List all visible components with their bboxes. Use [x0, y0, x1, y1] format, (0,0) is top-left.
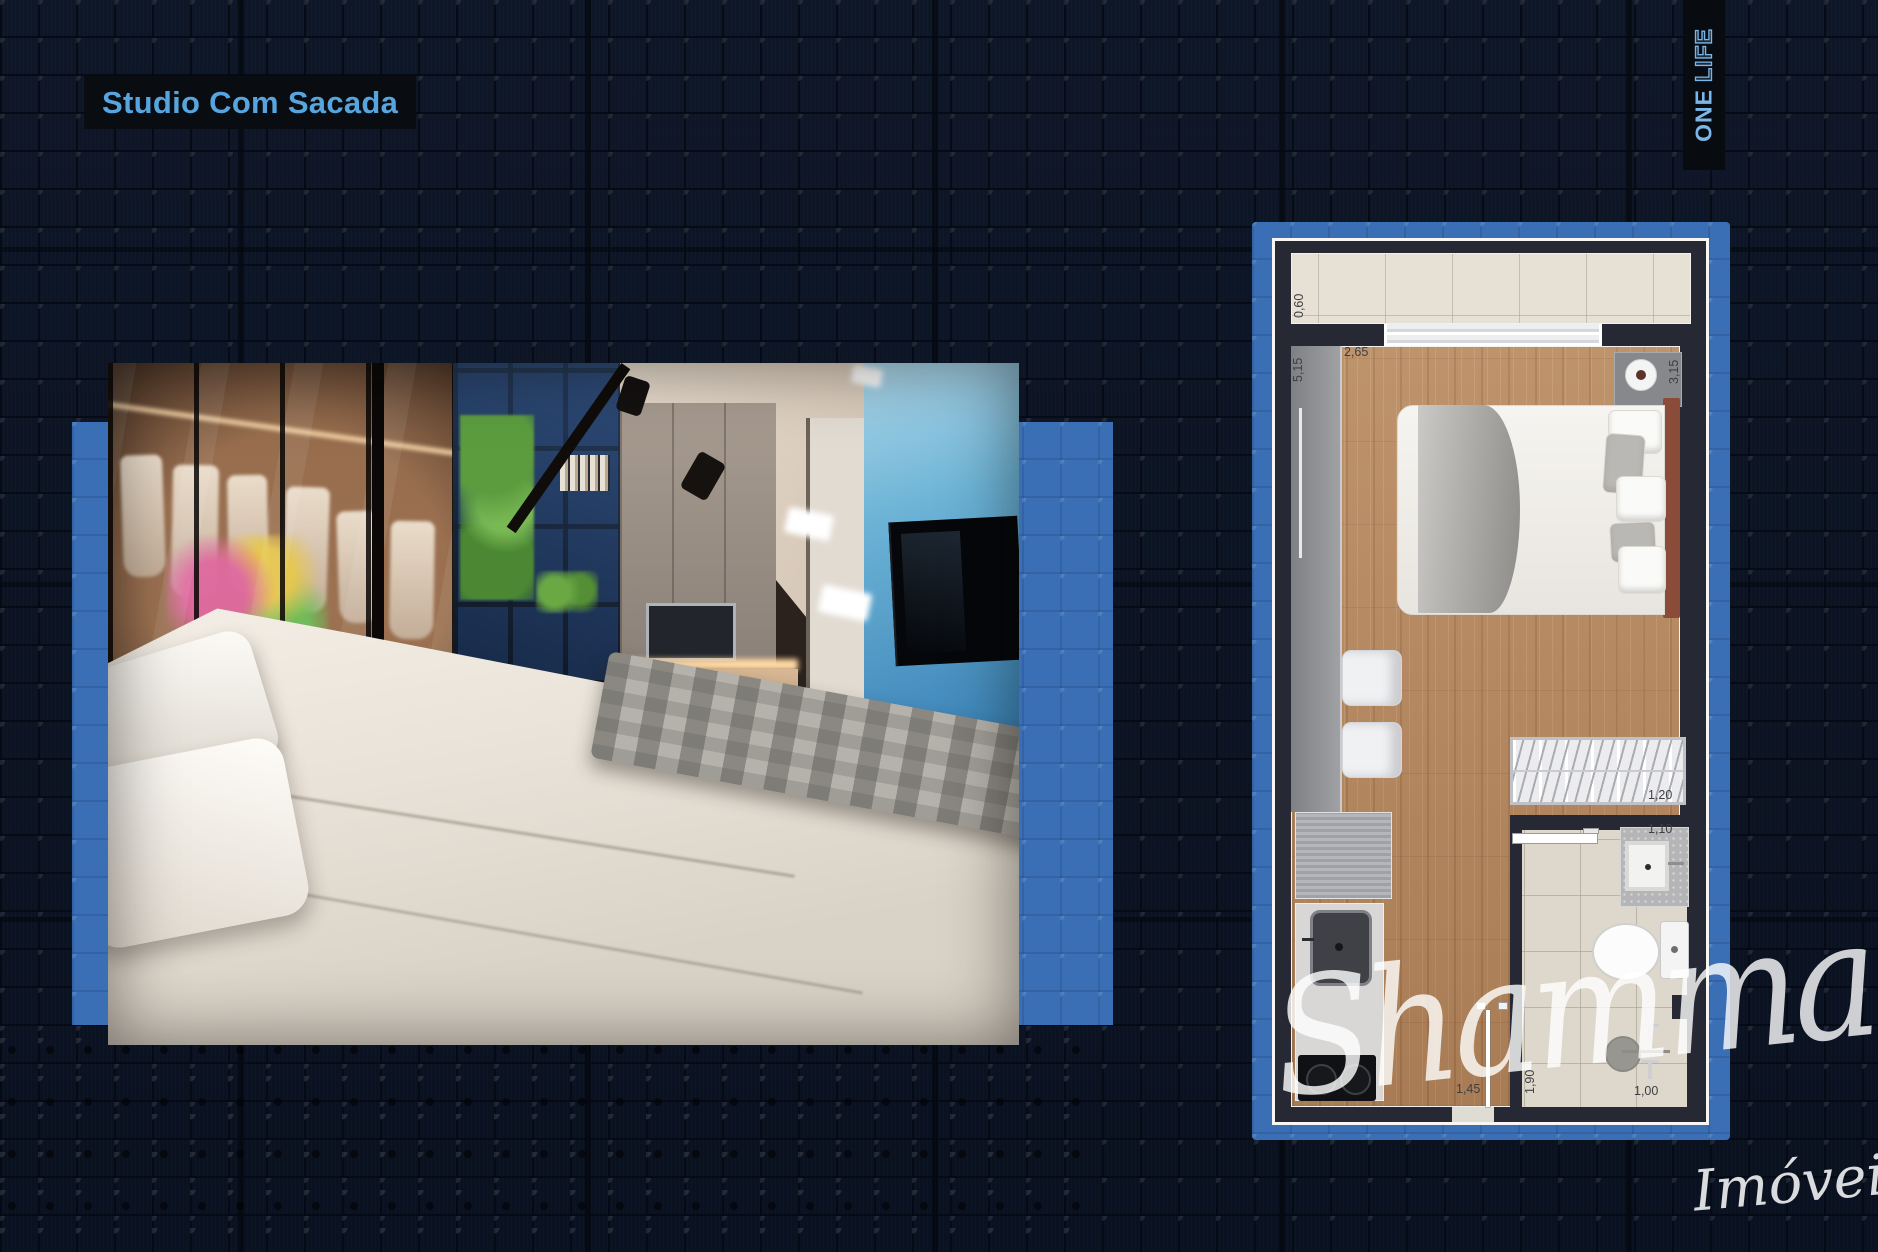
photo-stool — [616, 815, 704, 899]
floorplan-panel: 1,90 1,00 1,10 0,60 2,65 5,15 3,15 1,20 … — [1252, 222, 1730, 1140]
plan-entry-door — [1486, 1010, 1490, 1107]
plan-measure-bathroom-length: 1,90 — [1524, 1063, 1538, 1101]
photo-pillow — [108, 734, 313, 953]
page-title-text: Studio Com Sacada — [102, 85, 398, 120]
plan-measure-right-length: 3,15 — [1668, 350, 1682, 394]
photo-wood-counter — [607, 755, 833, 799]
plan-chair — [1342, 650, 1402, 706]
photo-mini-plant — [896, 805, 911, 818]
floorplan: 1,90 1,00 1,10 0,60 2,65 5,15 3,15 1,20 … — [1272, 238, 1709, 1125]
photo-lower-cabinets — [646, 793, 828, 925]
photo-artwork — [166, 535, 328, 677]
brand-word-one: ONE — [1691, 89, 1717, 142]
photo-open-shelving — [453, 363, 620, 763]
plan-measure-balcony-depth: 0,60 — [1293, 287, 1307, 325]
photo-closet-area — [108, 363, 453, 1045]
plan-measure-bathroom-width: 1,10 — [1648, 823, 1672, 837]
photo-knit-runner — [590, 651, 1019, 843]
photo-under-shelf-light — [453, 747, 620, 763]
plan-burner — [1306, 1064, 1337, 1095]
plan-measure-left-length: 5,15 — [1292, 350, 1306, 390]
plan-bathroom-faucet — [1668, 862, 1684, 865]
plan-burner — [1340, 1064, 1371, 1095]
photo-backsplash — [620, 669, 798, 763]
plan-shower-handle — [1622, 1050, 1670, 1053]
plan-sliding-door — [1384, 324, 1602, 346]
photo-entry-door — [806, 418, 870, 888]
photo-books — [560, 455, 610, 491]
photo-desk-wall — [453, 761, 620, 925]
photo-hanging-clothes — [336, 510, 380, 623]
plan-shower-drain — [1605, 1036, 1641, 1072]
photo-glass-mullions — [108, 363, 453, 1045]
photo-microwave — [646, 603, 736, 661]
photo-spotlight — [680, 450, 727, 501]
apartment-interior-photo — [108, 363, 1019, 1045]
photo-pillow — [108, 625, 284, 805]
photo-spotlight — [615, 375, 651, 417]
plan-shower-bar — [1648, 1063, 1652, 1079]
plan-door-mark — [1476, 1002, 1486, 1010]
photo-faucet — [758, 723, 762, 761]
photo-under-cabinet-light — [620, 659, 798, 671]
plan-bathroom: 1,90 1,00 1,10 — [1510, 815, 1691, 1107]
photo-hanging-clothes — [120, 454, 166, 577]
photo-upper-cabinets — [620, 403, 776, 665]
plan-bathroom-sink — [1625, 841, 1669, 891]
photo-closet-led-strip — [108, 401, 474, 459]
plan-pillow — [1616, 476, 1666, 522]
photo-red-book — [956, 793, 965, 827]
photo-oven — [746, 805, 810, 913]
photo-wood-floor — [638, 919, 883, 983]
plan-entry-opening — [1452, 1107, 1494, 1122]
brand-logo: ONELIFE — [1683, 0, 1725, 170]
watermark-brand-subtitle: Imóveis — [1691, 1143, 1878, 1224]
photo-hanging-clothes — [227, 475, 269, 594]
background-dots-texture — [0, 1038, 1080, 1252]
photo-hanging-clothes — [282, 486, 330, 613]
plan-kitchen-faucet — [1302, 938, 1314, 941]
photo-bed-duvet — [108, 363, 1019, 1045]
plan-bed-blanket — [1418, 405, 1520, 613]
photo-hanging-clothes — [389, 521, 435, 640]
plan-fridge — [1295, 812, 1392, 899]
photo-ceiling — [438, 363, 908, 703]
plan-counter-handle — [1299, 408, 1302, 558]
photo-duvet-fold — [153, 867, 863, 995]
photo-ceiling-light — [850, 364, 883, 388]
photo-towels — [114, 763, 162, 855]
plan-toilet-tank — [1660, 921, 1689, 979]
plan-wall-notch — [1672, 995, 1687, 1019]
photo-acrylic-chair — [532, 813, 616, 907]
brand-logo-text: ONELIFE — [1691, 28, 1718, 142]
photo-duvet-fold — [241, 787, 795, 878]
photo-trailing-plant — [460, 415, 534, 600]
brand-word-life: LIFE — [1691, 28, 1717, 82]
photo-dresser — [874, 827, 1019, 976]
photo-ceiling-light — [784, 507, 834, 542]
plan-pillow — [1618, 546, 1666, 594]
photo-blue-accent-wall — [864, 363, 1019, 1045]
photo-ceiling-light — [818, 584, 873, 622]
plan-measure-shower-width: 1,00 — [1634, 1085, 1658, 1099]
photo-dresser-decor — [884, 787, 1008, 833]
plan-bathroom-door — [1512, 833, 1598, 844]
photo-coffee-machine — [634, 713, 664, 761]
photo-tv — [888, 516, 1019, 667]
photo-track-light — [507, 363, 631, 533]
plan-measure-closet-width: 1,20 — [1648, 789, 1672, 803]
photo-glass-reflection — [108, 363, 453, 1045]
slide: Studio Com Sacada ONELIFE — [0, 0, 1878, 1252]
photo-hanging-clothes — [171, 465, 219, 598]
plan-chair — [1342, 722, 1402, 778]
plan-door-mark — [1498, 1002, 1508, 1010]
plan-kitchen-sink — [1310, 910, 1372, 986]
photo-small-plants — [536, 571, 598, 613]
plan-balcony — [1291, 253, 1691, 324]
plan-decor-disc — [1625, 359, 1657, 391]
photo-glass-center-frame — [372, 363, 384, 1045]
plan-measure-kitchen-width: 1,45 — [1456, 1083, 1480, 1097]
page-title: Studio Com Sacada — [84, 76, 416, 129]
plan-bathroom-wall — [1510, 815, 1522, 1107]
plan-measure-bedroom-width: 2,65 — [1344, 346, 1368, 360]
plan-cooktop — [1298, 1055, 1376, 1101]
plan-shower-bar — [1648, 1027, 1652, 1043]
plan-toilet-bowl — [1592, 923, 1660, 981]
